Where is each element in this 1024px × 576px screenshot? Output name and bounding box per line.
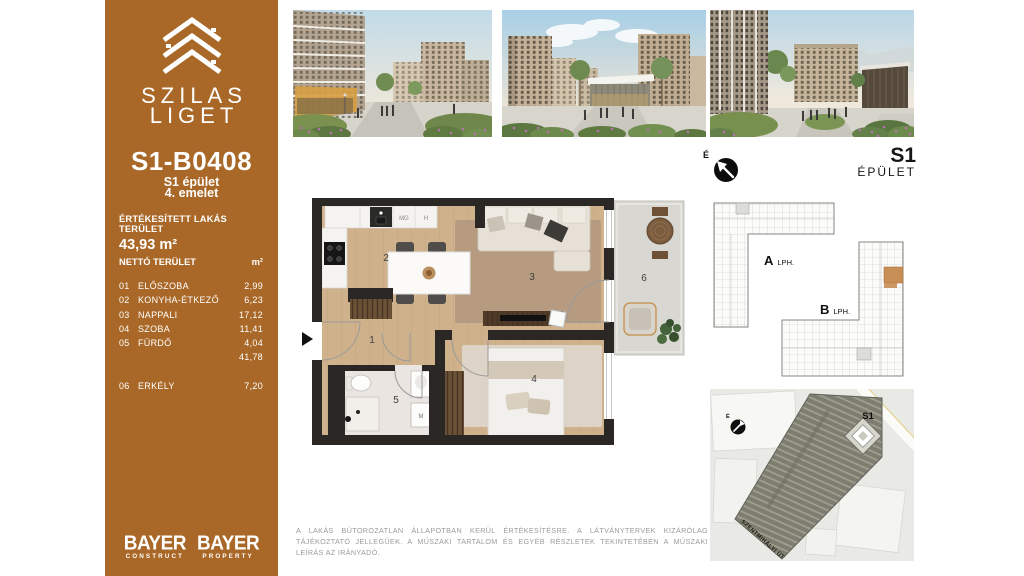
windows xyxy=(604,210,614,419)
compass-north-label: É xyxy=(703,150,709,160)
cooktop xyxy=(324,242,345,265)
building-title-word: ÉPÜLET xyxy=(857,166,916,179)
net-unit: m² xyxy=(252,257,263,267)
area-row: 04 SZOBA 11,41 xyxy=(119,322,263,336)
net-label: NETTÓ TERÜLET xyxy=(119,257,196,267)
building-title: S1 ÉPÜLET xyxy=(857,146,916,179)
render-photo-1 xyxy=(293,10,492,137)
area-total: 41,78 xyxy=(119,350,263,364)
net-area-header: NETTÓ TERÜLET m² xyxy=(119,257,263,267)
svg-text:É: É xyxy=(726,412,730,420)
fridge-label: H xyxy=(424,216,428,222)
area-row: 03 NAPPALI 17,12 xyxy=(119,308,263,322)
side-table xyxy=(549,310,566,327)
sold-area: ÉRTÉKESÍTETT LAKÁS TERÜLET 43,93 m² xyxy=(119,214,263,253)
room-label-3: 3 xyxy=(529,272,535,283)
balcony-row: 06 ERKÉLY 7,20 xyxy=(119,379,263,393)
area-row: 05 FÜRDŐ 4,04 xyxy=(119,336,263,350)
wing-a xyxy=(714,203,834,327)
wardrobe xyxy=(442,371,464,435)
floor-plan: MG H xyxy=(300,193,686,455)
stair-a-label: ALPH. xyxy=(764,253,794,268)
dishwasher-label: MG xyxy=(399,216,409,222)
area-row: 02 KONYHA-ÉTKEZŐ 6,23 xyxy=(119,293,263,307)
disclaimer: A LAKÁS BÚTOROZATLAN ÁLLAPOTBAN KERÜL ÉR… xyxy=(296,525,708,558)
area-table: 01 ELŐSZOBA 2,99 02 KONYHA-ÉTKEZŐ 6,23 0… xyxy=(119,279,263,393)
bayer-construct-logo: BAYER CONSTRUCT xyxy=(124,536,186,560)
brand-name: SZILAS LIGET xyxy=(105,86,278,126)
developer-logos: BAYER CONSTRUCT BAYER PROPERTY xyxy=(105,536,278,560)
north-compass-icon: É xyxy=(700,146,746,188)
room-label-4: 4 xyxy=(531,374,537,385)
building-key-header: É S1 ÉPÜLET xyxy=(700,146,916,188)
render-photo-3 xyxy=(710,10,914,137)
key-plan: ALPH. BLPH. xyxy=(700,190,920,386)
bayer-property-logo: BAYER PROPERTY xyxy=(197,536,259,560)
roof-chevrons-icon xyxy=(155,13,229,81)
building-title-code: S1 xyxy=(857,146,916,166)
balcony-bench xyxy=(652,207,668,216)
unit-subtitle: S1 épület 4. emelet xyxy=(105,177,278,199)
site-building-label: S1 xyxy=(862,411,874,422)
brand-line2: LIGET xyxy=(110,106,278,126)
room-label-1: 1 xyxy=(369,335,375,346)
unit-id: S1-B0408 xyxy=(105,146,278,177)
area-row: 01 ELŐSZOBA 2,99 xyxy=(119,279,263,293)
site-map: S1 É SZENTMIHÁLYI ÚT xyxy=(710,389,914,561)
hall-bench xyxy=(348,288,393,319)
entrance-arrow-icon xyxy=(302,332,313,346)
sold-area-value: 43,93 m² xyxy=(119,237,263,253)
sidebar: SZILAS LIGET S1-B0408 S1 épület 4. emele… xyxy=(105,0,278,576)
sold-area-label: ÉRTÉKESÍTETT LAKÁS TERÜLET xyxy=(119,214,263,234)
brand-logo xyxy=(105,13,278,81)
toilet xyxy=(351,375,371,391)
room-label-6: 6 xyxy=(641,273,647,284)
room-label-5: 5 xyxy=(393,395,399,406)
bed xyxy=(488,348,564,440)
render-photo-2 xyxy=(502,10,706,137)
balcony xyxy=(614,201,684,355)
stair-b-label: BLPH. xyxy=(820,302,850,317)
room-label-2: 2 xyxy=(383,253,389,264)
floorplan-sheet: SZILAS LIGET S1-B0408 S1 épület 4. emele… xyxy=(0,0,1024,576)
highlighted-unit xyxy=(884,267,903,283)
washer-label: M xyxy=(419,414,424,420)
unit-floor: 4. emelet xyxy=(105,188,278,199)
shower xyxy=(346,397,379,431)
